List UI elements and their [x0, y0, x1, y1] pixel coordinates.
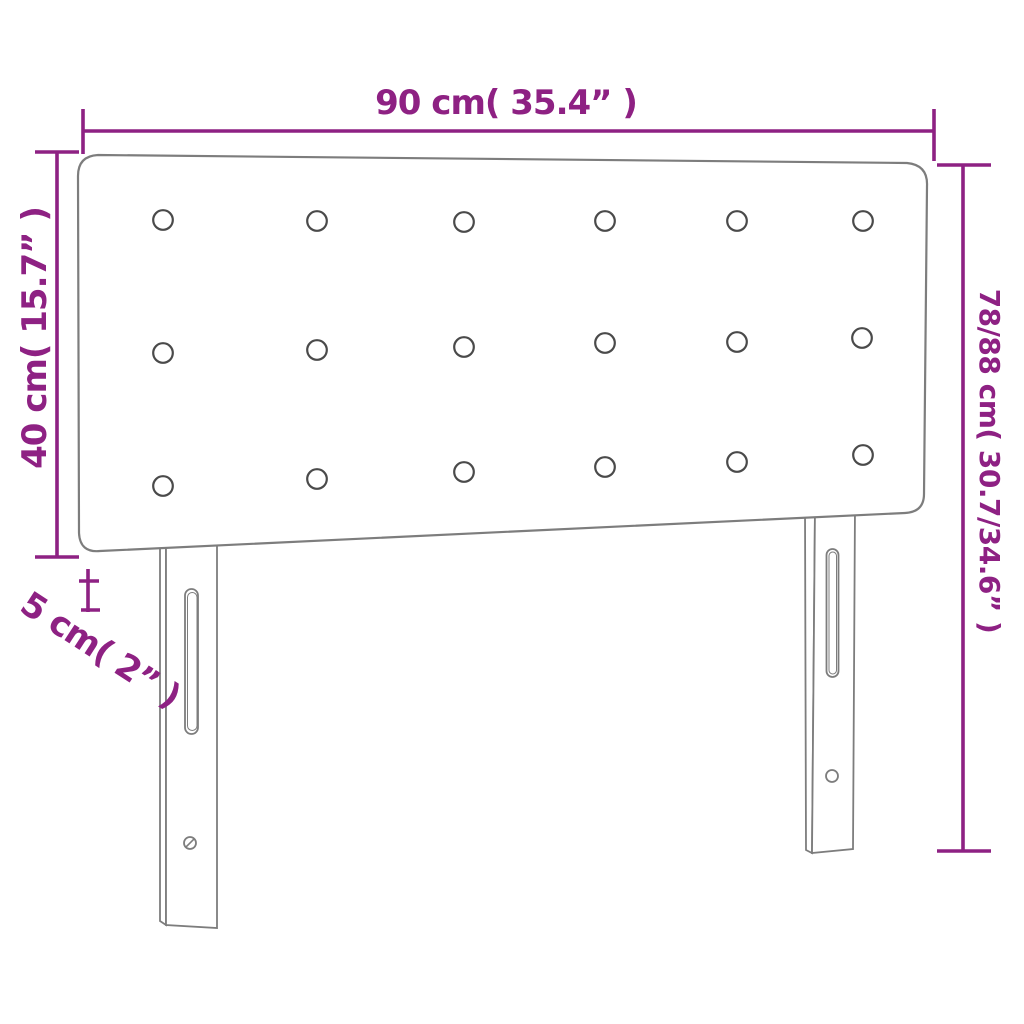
total-height-dim-label: 78/88 cm( 30.7/34.6” ) [973, 289, 1006, 634]
panel-height-dim-label: 40 cm( 15.7” ) [15, 207, 55, 469]
headboard-dimension-diagram: 90 cm( 35.4” ) 40 cm( 15.7” ) 5 cm( 2” )… [0, 0, 1024, 1024]
headboard-panel [78, 155, 927, 551]
tufting-button [595, 211, 615, 231]
tufting-button [454, 462, 474, 482]
right-leg [805, 505, 855, 853]
tufting-button [727, 452, 747, 472]
tufting-button [153, 210, 173, 230]
width-dim-label: 90 cm( 35.4” ) [375, 83, 637, 123]
tufting-button [153, 343, 173, 363]
tufting-button [454, 212, 474, 232]
tufting-button [454, 337, 474, 357]
tufting-button [307, 340, 327, 360]
tufting-button [853, 211, 873, 231]
panel-height-dimension: 40 cm( 15.7” ) [15, 152, 79, 557]
tufting-button [727, 211, 747, 231]
tufting-button [307, 469, 327, 489]
tufting-button [853, 445, 873, 465]
tufting-button [595, 457, 615, 477]
tufting-button [153, 476, 173, 496]
tufting-button [595, 333, 615, 353]
tufting-button [727, 332, 747, 352]
diagram-canvas: 90 cm( 35.4” ) 40 cm( 15.7” ) 5 cm( 2” )… [0, 0, 1024, 1024]
tufting-button [852, 328, 872, 348]
tufting-button [307, 211, 327, 231]
left-leg [160, 536, 217, 928]
width-dimension: 90 cm( 35.4” ) [83, 83, 934, 161]
right-leg-front-face [812, 505, 855, 853]
total-height-dimension: 78/88 cm( 30.7/34.6” ) [937, 165, 1006, 851]
left-leg-front-face [166, 536, 217, 928]
